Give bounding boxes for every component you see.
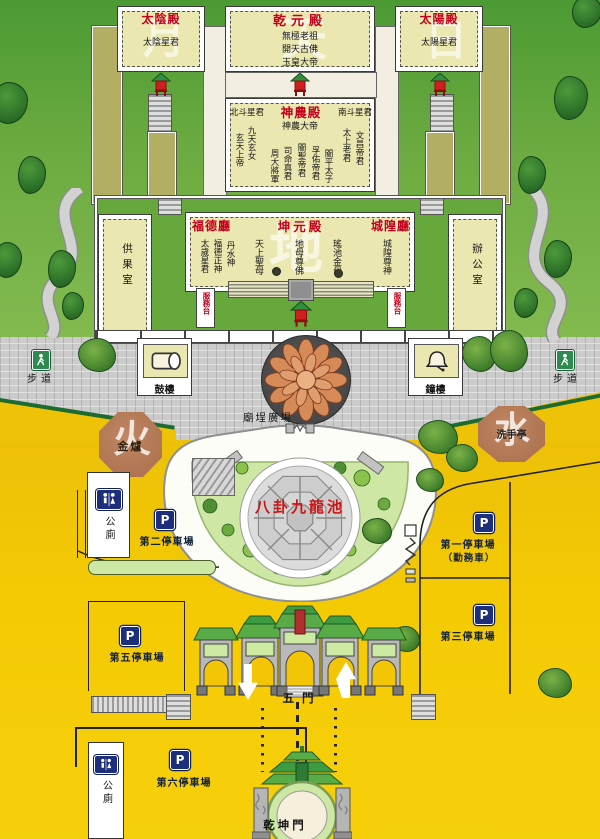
tree [446, 444, 478, 472]
east-wing [480, 26, 510, 204]
walking-person-icon [35, 353, 47, 367]
toilet-building: 公廁 [87, 472, 130, 558]
parking-sign: P [120, 626, 140, 646]
parking-sign: P [155, 510, 175, 530]
bell-icon [422, 348, 452, 374]
qiankun-gate-label: 乾坤門 [250, 817, 320, 833]
taiyin-deity: 太陰星君 [118, 35, 204, 48]
taiyang-title: 太陽殿 [396, 10, 482, 27]
road-lines-left [77, 490, 86, 558]
service-desk: 服務台 [196, 288, 215, 328]
stone-marker [334, 269, 343, 278]
hall-qianyuan: 天 乾元殿 無極老祖 開天古佛 玉皇大帝 [225, 6, 375, 72]
toilet-building: 公廁 [88, 742, 124, 839]
shennong-deity: 太上老君 [340, 128, 352, 162]
drum-tower: 鼓樓 [137, 338, 192, 396]
offering-room-label: 供果室 [120, 243, 135, 290]
stone-carving [288, 279, 314, 301]
incense-burner-icon [151, 73, 171, 97]
incense-burner-icon [290, 301, 312, 328]
gate-platform [411, 694, 436, 720]
qianyuan-deity-3: 玉皇大帝 [226, 55, 374, 68]
toilet-icon [94, 755, 118, 774]
pond-label: 八卦九龍池 [240, 496, 360, 517]
tree [490, 330, 528, 372]
kunyuan-deity: 太歲星君 [198, 239, 210, 273]
tree [362, 518, 392, 544]
tree [416, 468, 444, 492]
parking-sign: P [474, 513, 494, 533]
shennong-deity: 司命真君 [281, 146, 293, 180]
drum-icon [149, 349, 183, 373]
taiyang-deity: 太陽星君 [396, 35, 482, 48]
five-gate-label: 五門 [278, 690, 326, 706]
corridor-left [203, 26, 227, 212]
five-gate [192, 602, 408, 698]
shennong-north-star: 北斗星君 [230, 106, 264, 118]
parking-sign: P [474, 605, 494, 625]
stairs-east [430, 94, 454, 132]
stairs-west [148, 94, 172, 132]
kunyuan-deity: 城隍尊神 [380, 239, 393, 275]
kunyuan-deity: 丹水神 [224, 241, 236, 267]
walkway-label: 步道 [548, 370, 586, 385]
lot6-line-left [75, 727, 77, 767]
hall-taiyang: 日 太陽殿 太陽星君 [395, 6, 483, 72]
gate-platform [166, 694, 191, 720]
qianyuan-deity-2: 開天古佛 [226, 42, 374, 55]
shennong-deity: 文昌帝君 [353, 131, 365, 165]
service-desk: 服務台 [387, 288, 406, 328]
parking-lot1-label: 第一停車場 [429, 536, 507, 551]
toilet-icon [96, 489, 122, 510]
tree [78, 338, 116, 372]
walking-person-icon [559, 353, 571, 367]
parking-lot1-note: （勤務車） [435, 550, 503, 564]
courtyard-steps-west [158, 198, 182, 215]
shennong-deity: 孚佑帝君 [309, 146, 321, 180]
kunyuan-deity: 福德正神 [211, 239, 223, 273]
shennong-deity: 周大將軍 [268, 149, 280, 183]
plaza-stairs [192, 458, 235, 496]
incense-burner-icon [430, 73, 450, 97]
parking-lot5-outline [88, 601, 185, 691]
qianyuan-deity-1: 無極老祖 [226, 29, 374, 42]
walkway-sign [32, 350, 50, 370]
courtyard-steps-east [420, 198, 444, 215]
shennong-deity: 玄天上帝 [233, 133, 245, 167]
kunyuan-deity: 地母尊佛 [292, 239, 305, 275]
temple-map: 月 太陰殿 太陰星君 天 乾元殿 無極老祖 開天古佛 玉皇大帝 日 太陽殿 太陽… [0, 0, 600, 839]
tree [538, 668, 572, 698]
gold-furnace-label: 金爐 [99, 438, 162, 454]
walkway-label: 步道 [22, 370, 60, 385]
office-room-label: 辦公室 [470, 243, 485, 290]
west-block [148, 132, 176, 200]
stairs-symbol [402, 524, 420, 586]
parking-lot5-label: 第五停車場 [101, 649, 173, 664]
toilet-label: 公廁 [101, 516, 116, 542]
taiyin-title: 太陰殿 [118, 10, 204, 27]
lot6-line-top [75, 727, 307, 729]
drum-tower-label: 鼓樓 [138, 381, 191, 396]
east-block [426, 132, 454, 200]
kunyuan-deity: 天上聖母 [252, 239, 265, 275]
hall-shennong: 北斗星君 神農殿 南斗星君 神農大帝 玄天上帝 九天玄女 周大將軍 司命真君 關… [225, 98, 375, 192]
shennong-south-star: 南斗星君 [338, 106, 372, 118]
walkway-sign [556, 350, 574, 370]
shennong-deity: 九天玄女 [245, 126, 257, 160]
hedge [88, 560, 216, 575]
parking-lot6-label: 第六停車場 [146, 774, 222, 789]
incense-burner-icon [290, 73, 310, 97]
qianyuan-title: 乾元殿 [226, 10, 374, 29]
bell-tower: 鐘樓 [408, 338, 463, 396]
stone-marker [272, 267, 281, 276]
toilet-label: 公廁 [99, 780, 114, 806]
shennong-deity: 關聖帝君 [295, 143, 307, 177]
parking-sign: P [170, 750, 190, 770]
kunyuan-title: 坤元殿 [278, 216, 325, 235]
hall-taiyin: 月 太陰殿 太陰星君 [117, 6, 205, 72]
fude-hall-title: 福德廳 [192, 217, 231, 234]
parking-lot2-label: 第二停車場 [131, 533, 203, 548]
shennong-deity: 關平太子 [322, 149, 334, 183]
chenghuang-hall-title: 城隍廳 [371, 217, 410, 234]
parking-lot3-label: 第三停車場 [431, 628, 505, 643]
offering-room: 供果室 [98, 214, 152, 340]
office-room: 辦公室 [448, 214, 502, 340]
bell-tower-label: 鐘樓 [409, 381, 462, 396]
